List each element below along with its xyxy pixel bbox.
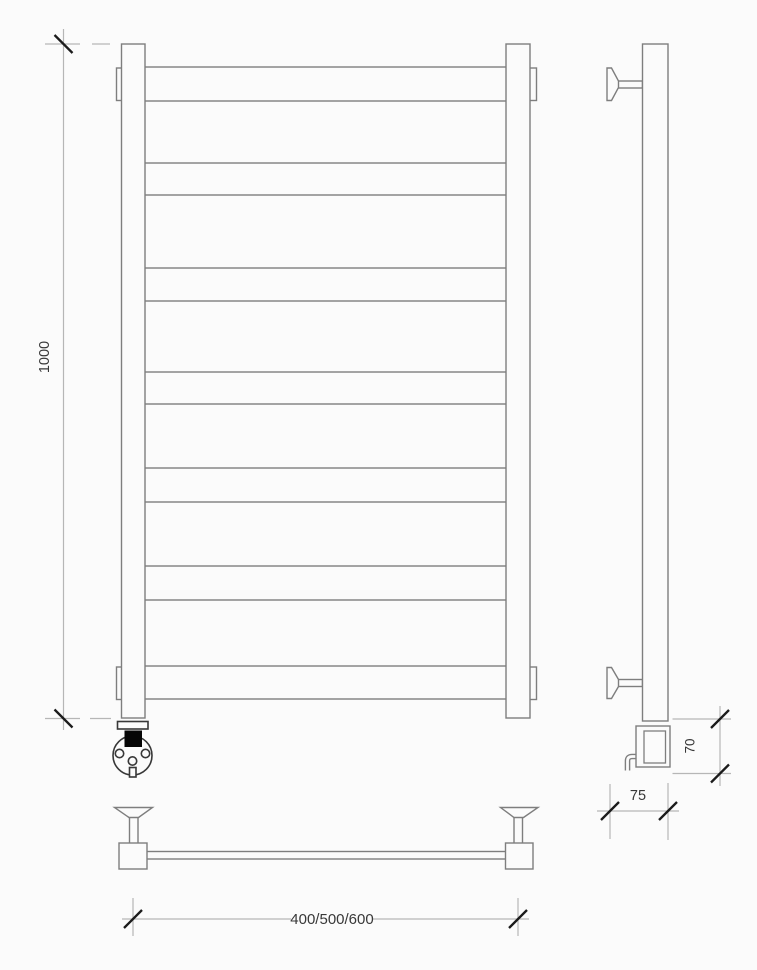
- rung-1: [144, 67, 507, 101]
- rung-2: [144, 163, 507, 195]
- towel-rail-drawing: 1000 70 75: [0, 0, 757, 970]
- post-left: [122, 44, 146, 718]
- dimension-housing: 70: [673, 706, 732, 786]
- rung-7: [144, 666, 507, 699]
- side-mount-top-plate: [607, 68, 619, 101]
- dimension-width: 400/500/600: [122, 898, 529, 936]
- plan-mount-right-cone: [501, 808, 539, 818]
- rungs: [144, 67, 507, 699]
- depth-dimension-label: 75: [630, 788, 646, 804]
- control-button-right: [141, 749, 149, 757]
- control-display-screen: [125, 731, 143, 748]
- side-mount-top-stem: [618, 81, 643, 88]
- plan-post-left: [119, 843, 147, 869]
- dimension-height: 1000: [37, 29, 111, 730]
- plan-mount-left-stem: [130, 817, 139, 844]
- electric-control-unit: [113, 722, 152, 778]
- control-stub: [130, 768, 137, 778]
- technical-drawing-page: 1000 70 75: [0, 0, 757, 970]
- front-view: [113, 44, 537, 777]
- rung-5: [144, 468, 507, 502]
- dimension-depth: 75: [597, 783, 679, 840]
- rung-6: [144, 566, 507, 600]
- plan-mount-left-cone: [115, 808, 153, 818]
- plan-view: [115, 808, 539, 870]
- housing-dimension-label: 70: [683, 738, 698, 753]
- plan-mount-right-stem: [514, 817, 523, 844]
- rung-4: [144, 372, 507, 404]
- side-profile-bar: [643, 44, 669, 721]
- rung-3: [144, 268, 507, 301]
- control-adapter-cap: [118, 722, 149, 730]
- plan-post-right: [506, 843, 534, 869]
- side-view: [607, 44, 670, 771]
- height-dimension-label: 1000: [37, 341, 53, 373]
- post-right: [506, 44, 530, 718]
- control-button-middle: [128, 757, 136, 765]
- side-mount-bottom-stem: [618, 680, 643, 687]
- plan-rung-bar: [146, 852, 507, 860]
- side-mount-bottom-plate: [607, 668, 619, 699]
- control-button-left: [115, 749, 123, 757]
- width-dimension-label: 400/500/600: [290, 911, 373, 928]
